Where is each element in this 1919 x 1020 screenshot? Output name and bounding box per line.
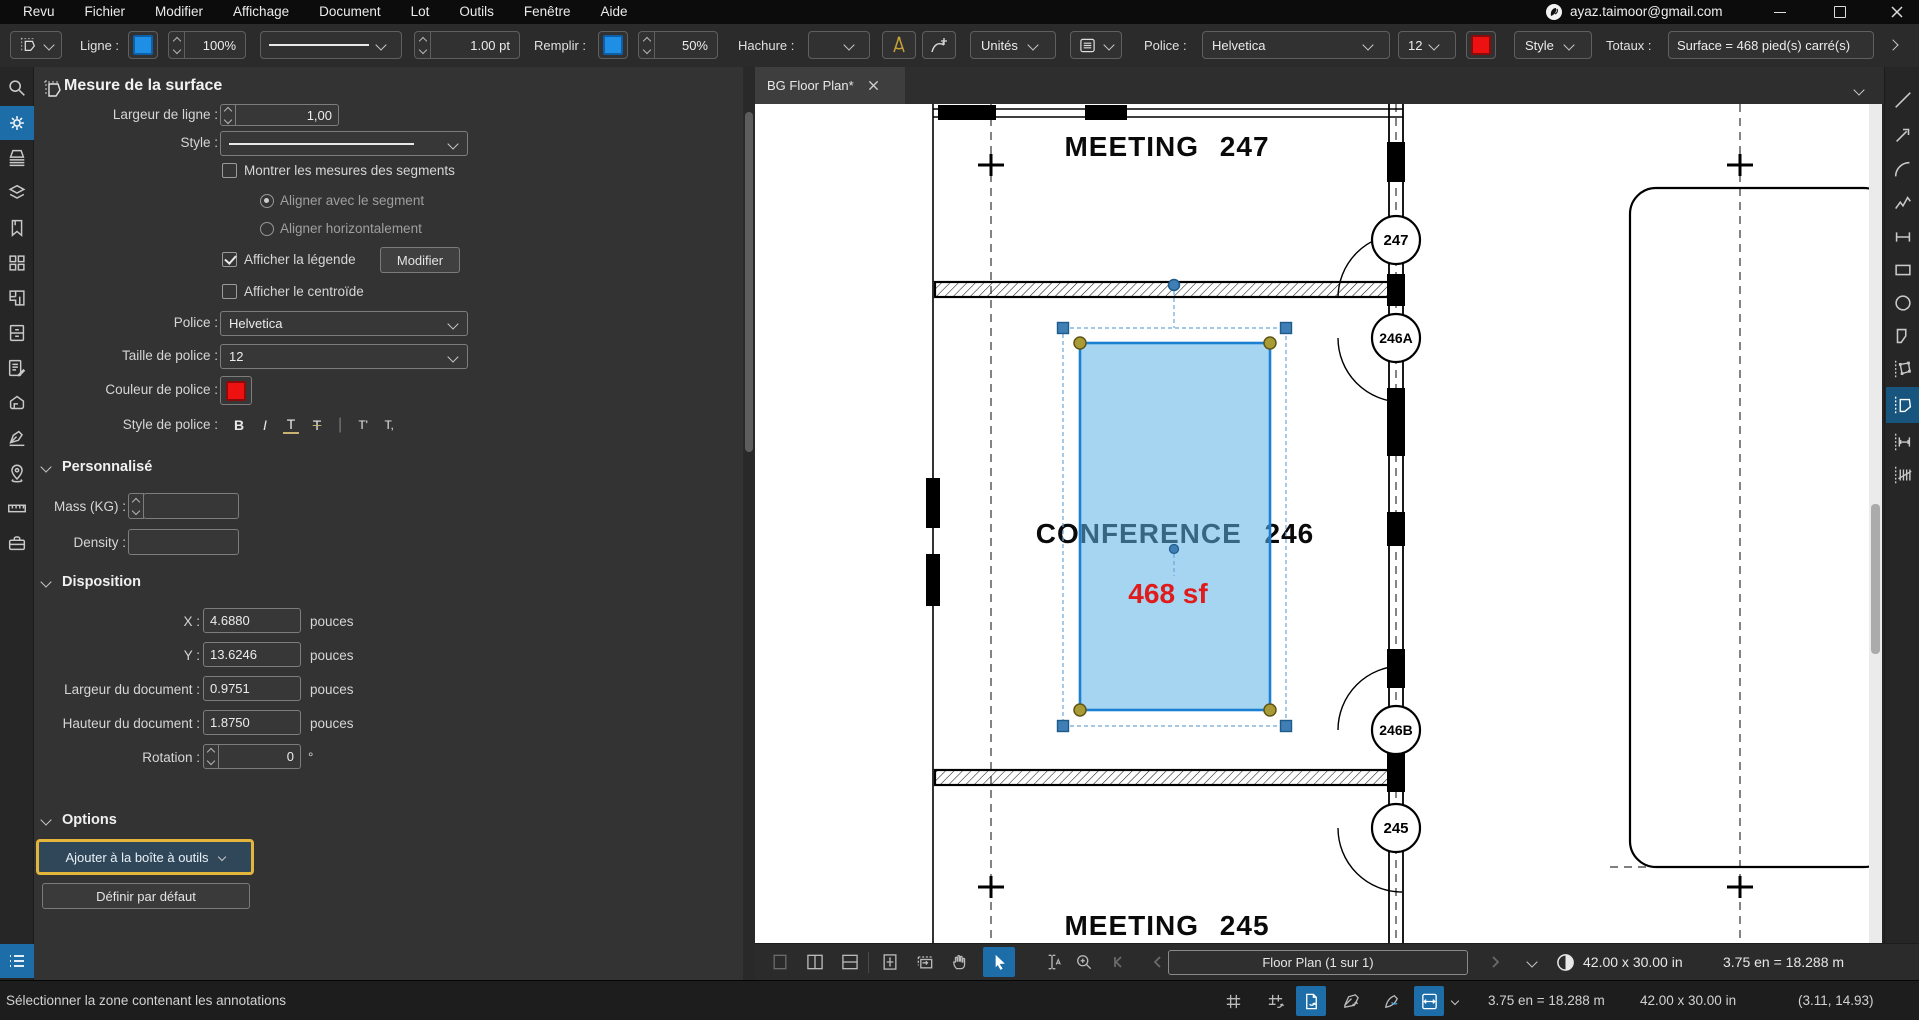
menu-affichage[interactable]: Affichage — [218, 0, 304, 24]
montrer-segments-checkbox[interactable] — [222, 163, 237, 178]
aligner-horizontal-radio[interactable] — [260, 222, 274, 236]
rotation-value[interactable] — [218, 749, 300, 764]
rotation-spin[interactable] — [203, 744, 219, 769]
status-scale: 3.75 en = 18.288 m — [1488, 981, 1605, 1020]
grid-toggle-icon[interactable] — [1218, 986, 1248, 1016]
taille-police-select[interactable]: 12 — [220, 344, 468, 369]
file-access-icon[interactable] — [0, 316, 34, 350]
measure-ruler-icon[interactable] — [0, 491, 34, 525]
largeur-doc-value[interactable] — [204, 681, 300, 696]
largeur-doc-unit: pouces — [310, 678, 354, 702]
totaux-label: Totaux : — [1606, 24, 1652, 67]
line-width-spinner[interactable]: 1.00 pt — [414, 31, 520, 59]
room-label-meeting-247: MEETING 247 — [1064, 131, 1269, 162]
arc-tool-icon[interactable] — [1886, 154, 1919, 186]
arrow-tool-icon[interactable] — [1886, 119, 1919, 151]
panel-title: Mesure de la surface — [64, 77, 222, 95]
largeur-ligne-input[interactable] — [235, 104, 339, 126]
aligner-horizontal-label: Aligner horizontalement — [280, 221, 422, 237]
area-tool-icon — [19, 36, 37, 54]
police-select[interactable]: Helvetica — [220, 311, 468, 336]
single-page-view-icon[interactable] — [765, 947, 795, 977]
caption-layout-dropdown[interactable] — [1070, 31, 1122, 59]
collapse-chevron-icon — [40, 576, 51, 587]
line-style-select[interactable] — [220, 131, 468, 156]
insert-pages-icon[interactable] — [875, 947, 905, 977]
aligner-segment-radio[interactable] — [260, 194, 274, 208]
x-unit: pouces — [310, 610, 354, 634]
dimension-tool-icon[interactable] — [1886, 221, 1919, 253]
door-tag-247: 247 — [1383, 232, 1408, 249]
door-tag-246a: 246A — [1379, 330, 1412, 346]
status-bar: Sélectionner la zone contenant les annot… — [0, 980, 1919, 1020]
door-tag-246b: 246B — [1379, 722, 1412, 738]
markups-list-toggle[interactable] — [0, 944, 34, 978]
style-police-label: Style de police : — [34, 413, 218, 437]
taille-police-label: Taille de police : — [34, 344, 218, 368]
bold-button[interactable]: B — [226, 417, 252, 433]
italic-button[interactable]: I — [252, 417, 278, 433]
area-measure-icon — [42, 78, 62, 98]
largeur-doc-label: Largeur du document : — [34, 678, 200, 702]
section-options[interactable]: Options — [42, 812, 117, 828]
revu-logo-icon — [1545, 3, 1563, 21]
remplir-label: Remplir : — [534, 24, 586, 67]
bluebeam-revu-window: Revu Fichier Modifier Affichage Document… — [0, 0, 1919, 1020]
contrast-icon[interactable] — [1550, 947, 1580, 977]
font-family-dropdown[interactable]: Helvetica — [1202, 31, 1390, 59]
search-icon[interactable] — [0, 71, 34, 105]
y-unit: pouces — [310, 644, 354, 668]
snap-to-markup-icon[interactable] — [1376, 986, 1406, 1016]
section-personnalise[interactable]: Personnalisé — [42, 459, 152, 475]
subscript-button[interactable]: T, — [376, 418, 402, 432]
afficher-centroide-label: Afficher le centroïde — [244, 284, 364, 300]
reuse-menu-chevron[interactable] — [1446, 986, 1464, 1016]
mass-spin[interactable] — [128, 493, 144, 519]
density-input[interactable] — [128, 529, 239, 555]
top-edge-wall — [933, 105, 1403, 120]
x-value[interactable] — [204, 613, 300, 628]
markup-list-icon[interactable] — [0, 351, 34, 385]
title-bar: Revu Fichier Modifier Affichage Document… — [0, 0, 1919, 24]
menu-fichier[interactable]: Fichier — [70, 0, 141, 24]
thumbnails-icon[interactable] — [0, 141, 34, 175]
line-style-dropdown[interactable] — [260, 31, 402, 59]
calibrate-pen-icon[interactable] — [0, 421, 34, 455]
collapse-chevron-icon — [40, 461, 51, 472]
fill-opacity-spinner[interactable]: 50% — [638, 31, 718, 59]
room-label-meeting-245: MEETING 245 — [1064, 910, 1269, 941]
style-label: Style : — [34, 131, 218, 155]
ellipse-tool-icon[interactable] — [1886, 287, 1919, 319]
fill-color-swatch[interactable] — [598, 31, 628, 59]
pan-hand-icon[interactable] — [945, 947, 975, 977]
document-area: BG Floor Plan* — [755, 67, 1919, 980]
rotation-input[interactable] — [218, 744, 301, 769]
density-value[interactable] — [129, 535, 238, 550]
properties-toolbar: Ligne : 100% 1.00 pt Remplir : 50% Hachu… — [0, 24, 1919, 68]
area-measurement-annotation[interactable] — [1080, 343, 1270, 710]
split-horizontal-icon[interactable] — [835, 947, 865, 977]
places-pin-icon[interactable] — [0, 456, 34, 490]
rotation-unit: ° — [308, 746, 313, 770]
largeur-doc-input[interactable] — [203, 676, 301, 701]
tab-list-chevron[interactable] — [1855, 81, 1863, 99]
menu-fenetre[interactable]: Fenêtre — [509, 0, 586, 24]
left-wall — [926, 104, 940, 943]
page-size-readout: 42.00 x 30.00 in — [1583, 944, 1683, 981]
couleur-police-swatch[interactable] — [220, 376, 252, 405]
hachure-dropdown[interactable] — [808, 31, 870, 59]
status-size: 42.00 x 30.00 in — [1640, 981, 1736, 1020]
hauteur-doc-label: Hauteur du document : — [34, 712, 200, 736]
polyline-tool-icon[interactable] — [1886, 188, 1919, 220]
rotation-label: Rotation : — [34, 746, 200, 770]
montrer-segments-label: Montrer les mesures des segments — [244, 163, 455, 179]
y-input[interactable] — [203, 642, 301, 667]
y-value[interactable] — [204, 647, 300, 662]
rotation-handle[interactable] — [1169, 280, 1180, 291]
afficher-centroide-checkbox[interactable] — [222, 284, 237, 299]
account-email[interactable]: ayaz.taimoor@gmail.com — [1570, 0, 1723, 24]
font-size-dropdown[interactable]: 12 — [1398, 31, 1456, 59]
line-style-preview — [229, 143, 414, 145]
page-navigation-input[interactable]: Floor Plan (1 sur 1) — [1168, 950, 1468, 975]
totaux-value-box[interactable]: Surface = 468 pied(s) carré(s) — [1668, 31, 1874, 59]
scale-readout: 3.75 en = 18.288 m — [1723, 944, 1844, 981]
layers-icon[interactable] — [0, 176, 34, 210]
restore-button[interactable] — [1823, 0, 1857, 24]
curve-tool-button[interactable] — [922, 31, 956, 59]
cursor-coordinates: (3.11, 14.93) — [1798, 981, 1874, 1020]
polygon-tool-icon[interactable] — [1886, 320, 1919, 352]
compass-icon — [889, 35, 909, 55]
spaces-grid-icon[interactable] — [0, 246, 34, 280]
police-label: Police : — [34, 311, 218, 335]
menu-revu[interactable]: Revu — [8, 0, 70, 24]
afficher-legende-label: Afficher la légende — [244, 252, 356, 268]
y-label: Y : — [34, 644, 200, 668]
modifier-button[interactable]: Modifier — [380, 247, 460, 273]
style-dropdown[interactable]: Style — [1514, 31, 1592, 59]
menu-lot[interactable]: Lot — [396, 0, 445, 24]
measurement-properties-panel: Mesure de la surface Largeur de ligne : … — [34, 67, 743, 980]
pdf-canvas[interactable]: 247 246A 246B 245 MEETING 247 MEETING 24… — [755, 104, 1869, 943]
snap-content-icon[interactable] — [1296, 986, 1326, 1016]
police-label: Police : — [1144, 24, 1187, 67]
ajouter-boite-outils-button[interactable]: Ajouter à la boîte à outils — [36, 839, 254, 875]
minimize-button[interactable] — [1763, 0, 1797, 24]
line-color-swatch[interactable] — [128, 31, 158, 59]
select-text-icon[interactable] — [1037, 947, 1067, 977]
section-disposition[interactable]: Disposition — [42, 574, 141, 590]
menu-modifier[interactable]: Modifier — [140, 0, 218, 24]
document-nav-bar: Floor Plan (1 sur 1) 42.00 x 30.00 in 3.… — [755, 943, 1919, 980]
panel-scrollbar[interactable] — [743, 67, 755, 980]
largeur-ligne-label: Largeur de ligne : — [34, 103, 218, 127]
couleur-police-label: Couleur de police : — [34, 378, 218, 402]
hauteur-doc-input[interactable] — [203, 710, 301, 735]
totaux-expand-chevron[interactable] — [1880, 31, 1906, 59]
snap-markup-icon[interactable] — [1336, 986, 1366, 1016]
properties-gear-icon[interactable] — [0, 106, 34, 140]
definir-defaut-button[interactable]: Définir par défaut — [42, 883, 250, 909]
mass-value[interactable] — [144, 499, 238, 514]
line-tool-icon[interactable] — [1886, 84, 1919, 116]
mass-label: Mass (KG) : — [34, 495, 126, 519]
largeur-ligne-value[interactable] — [235, 108, 338, 123]
close-tab-icon[interactable] — [868, 80, 879, 91]
font-color-swatch[interactable] — [1466, 31, 1496, 59]
select-tool-icon[interactable] — [983, 947, 1015, 977]
first-page-icon[interactable] — [1104, 947, 1134, 977]
spaces-plan-icon[interactable] — [0, 281, 34, 315]
collapse-chevron-icon — [40, 814, 51, 825]
x-label: X : — [34, 610, 200, 634]
underline-button[interactable]: T — [283, 416, 299, 434]
mass-input[interactable] — [143, 493, 239, 519]
ligne-label: Ligne : — [80, 24, 119, 67]
page-menu-chevron[interactable] — [1517, 947, 1547, 977]
tool-preset-dropdown[interactable] — [10, 31, 62, 59]
zoom-tool-icon[interactable] — [1069, 947, 1099, 977]
x-input[interactable] — [203, 608, 301, 633]
adjacent-room-outline — [1630, 188, 1869, 867]
hauteur-doc-unit: pouces — [310, 712, 354, 736]
status-message: Sélectionner la zone contenant les annot… — [6, 981, 286, 1020]
menu-outils[interactable]: Outils — [444, 0, 509, 24]
bookmarks-icon[interactable] — [0, 211, 34, 245]
line-opacity-spinner[interactable]: 100% — [168, 31, 246, 59]
hauteur-doc-value[interactable] — [204, 715, 300, 730]
aligner-segment-label: Aligner avec le segment — [280, 193, 424, 209]
reuse-tool-icon[interactable] — [1414, 986, 1444, 1016]
center-handle[interactable] — [1170, 545, 1179, 554]
snap-grid-icon[interactable] — [1260, 986, 1290, 1016]
left-panel-rail — [0, 67, 34, 980]
hachure-label: Hachure : — [738, 24, 794, 67]
3d-model-icon[interactable] — [0, 386, 34, 420]
area-measurement-label: 468 sf — [1128, 578, 1208, 609]
length-measure-tool-icon[interactable] — [1886, 426, 1919, 458]
door-tag-245: 245 — [1383, 820, 1408, 837]
toolbox-icon[interactable] — [0, 526, 34, 560]
unites-dropdown[interactable]: Unités — [970, 31, 1056, 59]
floor-plan-drawing: 247 246A 246B 245 MEETING 247 MEETING 24… — [755, 104, 1869, 943]
menu-aide[interactable]: Aide — [585, 0, 642, 24]
tab-bg-floor-plan[interactable]: BG Floor Plan* — [755, 67, 905, 104]
close-button[interactable] — [1880, 0, 1914, 24]
menu-document[interactable]: Document — [304, 0, 396, 24]
largeur-ligne-spin[interactable] — [220, 104, 236, 126]
afficher-legende-checkbox[interactable] — [222, 252, 237, 267]
strikethrough-button[interactable]: T — [309, 417, 325, 433]
superscript-button[interactable]: T' — [350, 418, 376, 432]
crop-pages-icon[interactable] — [910, 947, 940, 977]
document-tab-bar: BG Floor Plan* — [755, 67, 1919, 104]
canvas-vertical-scrollbar[interactable] — [1869, 104, 1882, 943]
perimeter-tool-icon[interactable] — [1886, 353, 1919, 385]
rectangle-tool-icon[interactable] — [1886, 254, 1919, 286]
next-page-icon[interactable] — [1480, 947, 1510, 977]
divider — [868, 952, 869, 973]
area-measure-tool-icon[interactable] — [1886, 387, 1919, 423]
sketch-tools-button[interactable] — [882, 31, 916, 59]
list-lines-icon — [1079, 37, 1096, 54]
count-tool-icon[interactable] — [1886, 459, 1919, 491]
split-vertical-icon[interactable] — [800, 947, 830, 977]
curve-plus-icon — [929, 35, 949, 55]
density-label: Density : — [34, 531, 126, 555]
markup-tool-rail — [1884, 67, 1919, 980]
line-style-preview — [269, 44, 369, 46]
